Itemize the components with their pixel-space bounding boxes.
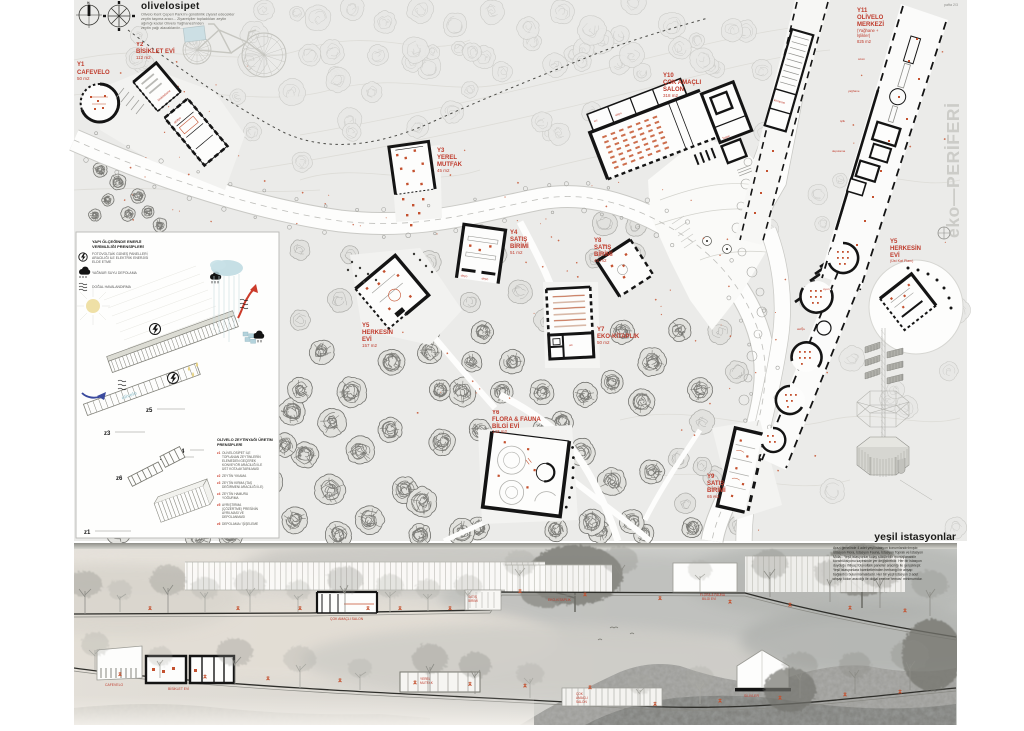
svg-text:PRENSİPLERİ: PRENSİPLERİ (217, 443, 242, 447)
svg-text:SATIŞ: SATIŞ (707, 481, 724, 487)
svg-text:HERKESİN: HERKESİN (890, 245, 921, 252)
svg-text:YAĞMUR SUYU DEPOLAMA: YAĞMUR SUYU DEPOLAMA (92, 270, 138, 275)
svg-text:YOĞURMA: YOĞURMA (222, 495, 239, 500)
svg-text:z1: z1 (217, 451, 221, 455)
svg-text:BİRİMİ: BİRİMİ (594, 251, 613, 258)
svg-text:Y6: Y6 (492, 410, 500, 416)
svg-text:HERKESİN: HERKESİN (362, 329, 393, 336)
svg-text:z6: z6 (217, 522, 221, 526)
svg-text:sıkım: sıkım (858, 57, 866, 61)
svg-text:z6: z6 (116, 476, 123, 482)
svg-text:Y2: Y2 (136, 42, 144, 48)
svg-text:konstrüksiyonu sayesinde yer d: konstrüksiyonu sayesinde yer değiştirebi… (833, 559, 922, 563)
svg-text:Y10: Y10 (663, 73, 674, 79)
svg-text:MUTFAK: MUTFAK (420, 681, 434, 685)
svg-text:Y11: Y11 (857, 8, 868, 14)
svg-text:K: K (87, 0, 90, 5)
svg-text:Y8: Y8 (594, 238, 602, 244)
svg-text:ağırlığı kadar Olivelo Yağhane: ağırlığı kadar Olivelo Yağhanesi'nden (141, 22, 204, 26)
svg-text:BİSİKLET EVİ: BİSİKLET EVİ (168, 686, 189, 691)
svg-text:Y5: Y5 (890, 239, 898, 245)
svg-text:DEPOLANMASI: DEPOLANMASI (222, 515, 245, 519)
svg-text:EVİ: EVİ (890, 252, 900, 259)
svg-text:Mola... Yeşil istasyonlar kola: Mola... Yeşil istasyonlar kolay sökülebi… (833, 555, 917, 559)
svg-text:atölye: atölye (797, 327, 805, 331)
svg-text:BİRİMİ: BİRİMİ (707, 487, 726, 494)
svg-text:ÇOK AMAÇLI: ÇOK AMAÇLI (663, 80, 701, 86)
svg-text:olivelosipet: olivelosipet (141, 1, 200, 12)
svg-text:İstasyon Flora, İstasyon Fauna: İstasyon Flora, İstasyon Fauna, İstasyon… (833, 549, 923, 554)
svg-text:Y5: Y5 (362, 323, 370, 329)
svg-text:z5: z5 (146, 408, 153, 414)
svg-text:oyun: oyun (823, 287, 830, 291)
svg-text:112 m2: 112 m2 (136, 55, 151, 60)
svg-text:yeşil istasyonlar: yeşil istasyonlar (874, 531, 956, 543)
svg-text:318 m2: 318 m2 (663, 93, 679, 98)
svg-text:eko—PERİFERİ: eko—PERİFERİ (943, 102, 963, 238)
svg-text:45 m2: 45 m2 (437, 168, 450, 173)
svg-text:DEPOLAMA / ŞİŞELEME: DEPOLAMA / ŞİŞELEME (222, 521, 258, 526)
svg-text:duyduğu ihtiyaç fotovoltaik pa: duyduğu ihtiyaç fotovoltaik paneller ara… (833, 564, 921, 568)
svg-text:ZEYTİN YIKAMA: ZEYTİN YIKAMA (222, 473, 247, 478)
svg-text:z4: z4 (217, 492, 221, 496)
svg-text:ÜST KOTA AKTARILMASI: ÜST KOTA AKTARILMASI (222, 467, 259, 471)
svg-text:ELDE ETME: ELDE ETME (92, 260, 112, 264)
svg-text:BİRİMİ: BİRİMİ (510, 243, 529, 250)
svg-text:z2: z2 (217, 474, 221, 478)
svg-text:Y7: Y7 (597, 327, 605, 333)
svg-text:ahşap kolon aracılığı ile doğa: ahşap kolon aracılığı ile doğal zemine '… (833, 577, 923, 581)
svg-text:yağhane: yağhane (848, 89, 860, 93)
svg-text:zeytin yağı alacaklardır...: zeytin yağı alacaklardır... (141, 26, 183, 30)
svg-text:Y9: Y9 (707, 474, 715, 480)
svg-text:depolama: depolama (832, 149, 846, 153)
svg-text:Arazi genelinde 4 adet yeşil i: Arazi genelinde 4 adet yeşil istasyon ko… (833, 546, 918, 550)
svg-text:CAFEVELO: CAFEVELO (105, 683, 123, 687)
svg-text:EKO-KİTAPLIK: EKO-KİTAPLIK (548, 597, 572, 602)
svg-text:z5: z5 (217, 503, 221, 507)
svg-text:Olivelo Kent Çeperi Parkı'nı g: Olivelo Kent Çeperi Parkı'nı günübirlik … (141, 13, 235, 17)
svg-text:DEĞİRMENİ ARACILIĞI İLE): DEĞİRMENİ ARACILIĞI İLE) (222, 484, 263, 489)
svg-text:OLİVELO ZEYTİNYAĞI ÜRETİM: OLİVELO ZEYTİNYAĞI ÜRETİM (217, 437, 273, 442)
svg-text:FLORA & FAUNA: FLORA & FAUNA (492, 417, 541, 423)
svg-text:SATIŞ: SATIŞ (510, 237, 527, 243)
svg-text:z3: z3 (104, 431, 111, 437)
svg-text:(Üst Kat Planı): (Üst Kat Planı) (890, 259, 913, 263)
svg-text:MERKEZİ: MERKEZİ (857, 21, 884, 28)
svg-text:BİLGİ EVİ: BİLGİ EVİ (702, 596, 716, 601)
svg-text:ÇOK AMAÇLI SALON: ÇOK AMAÇLI SALON (330, 617, 364, 621)
svg-text:SİLİVLER: SİLİVLER (744, 693, 759, 698)
svg-text:SATIŞ: SATIŞ (594, 245, 611, 251)
svg-text:157 m2: 157 m2 (362, 343, 378, 348)
svg-text:İşlikler): İşlikler) (857, 33, 871, 38)
svg-text:z3: z3 (217, 481, 221, 485)
svg-text:50 m2: 50 m2 (77, 76, 90, 81)
svg-text:Y3: Y3 (437, 148, 445, 154)
svg-text:BİSİKLET EVİ: BİSİKLET EVİ (136, 48, 175, 55)
svg-text:Yeşil istasyonlara hareketleri: Yeşil istasyonlara hareketlerinden herha… (833, 568, 913, 572)
svg-text:işlik: işlik (840, 119, 845, 123)
svg-text:Y4: Y4 (510, 230, 518, 236)
svg-text:45 m2: 45 m2 (594, 258, 607, 263)
svg-text:65 m2: 65 m2 (707, 494, 720, 499)
svg-text:DOĞAL HAVALANDIRMA: DOĞAL HAVALANDIRMA (92, 284, 132, 289)
svg-text:zeytin taşıma aracı... Ziyaret: zeytin taşıma aracı... Ziyaretçiler topl… (141, 17, 226, 21)
svg-text:EVİ: EVİ (362, 336, 372, 343)
svg-text:VERİMLİLİĞİ PRENSİPLERİ: VERİMLİLİĞİ PRENSİPLERİ (92, 244, 144, 249)
svg-text:143 m2: 143 m2 (492, 429, 508, 434)
svg-text:Y1: Y1 (77, 62, 85, 68)
svg-text:BİRİMİ: BİRİMİ (468, 598, 478, 603)
svg-text:EKO-KİTAPLIK: EKO-KİTAPLIK (597, 333, 640, 340)
svg-text:SALON: SALON (576, 700, 588, 704)
svg-text:51 m2: 51 m2 (510, 250, 523, 255)
svg-text:50 m2: 50 m2 (597, 340, 610, 345)
svg-text:YEREL: YEREL (437, 155, 457, 161)
svg-text:pafta 2/3: pafta 2/3 (944, 3, 958, 7)
svg-text:825 m2: 825 m2 (857, 39, 872, 44)
svg-text:bağlantısı bulunmamaktadır. He: bağlantısı bulunmamaktadır. Her bir yeşi… (833, 572, 918, 576)
svg-text:OLİVELO: OLİVELO (857, 14, 884, 21)
svg-text:z1: z1 (84, 530, 91, 536)
